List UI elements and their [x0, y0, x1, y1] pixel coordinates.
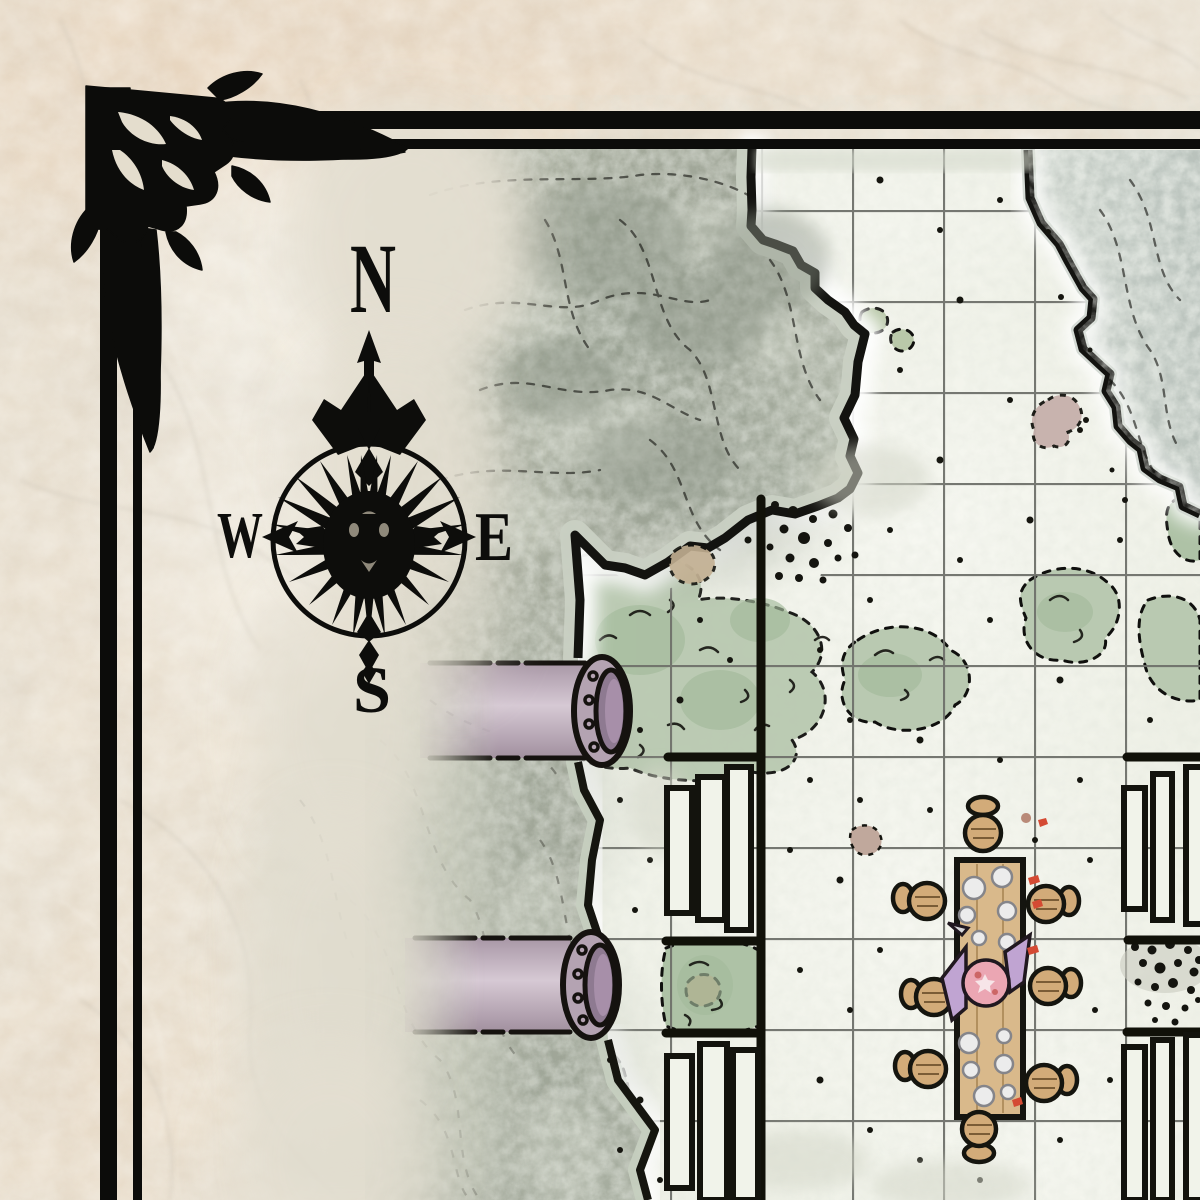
svg-text:N: N	[350, 223, 396, 334]
svg-text:W: W	[217, 499, 263, 572]
svg-text:E: E	[475, 499, 513, 576]
